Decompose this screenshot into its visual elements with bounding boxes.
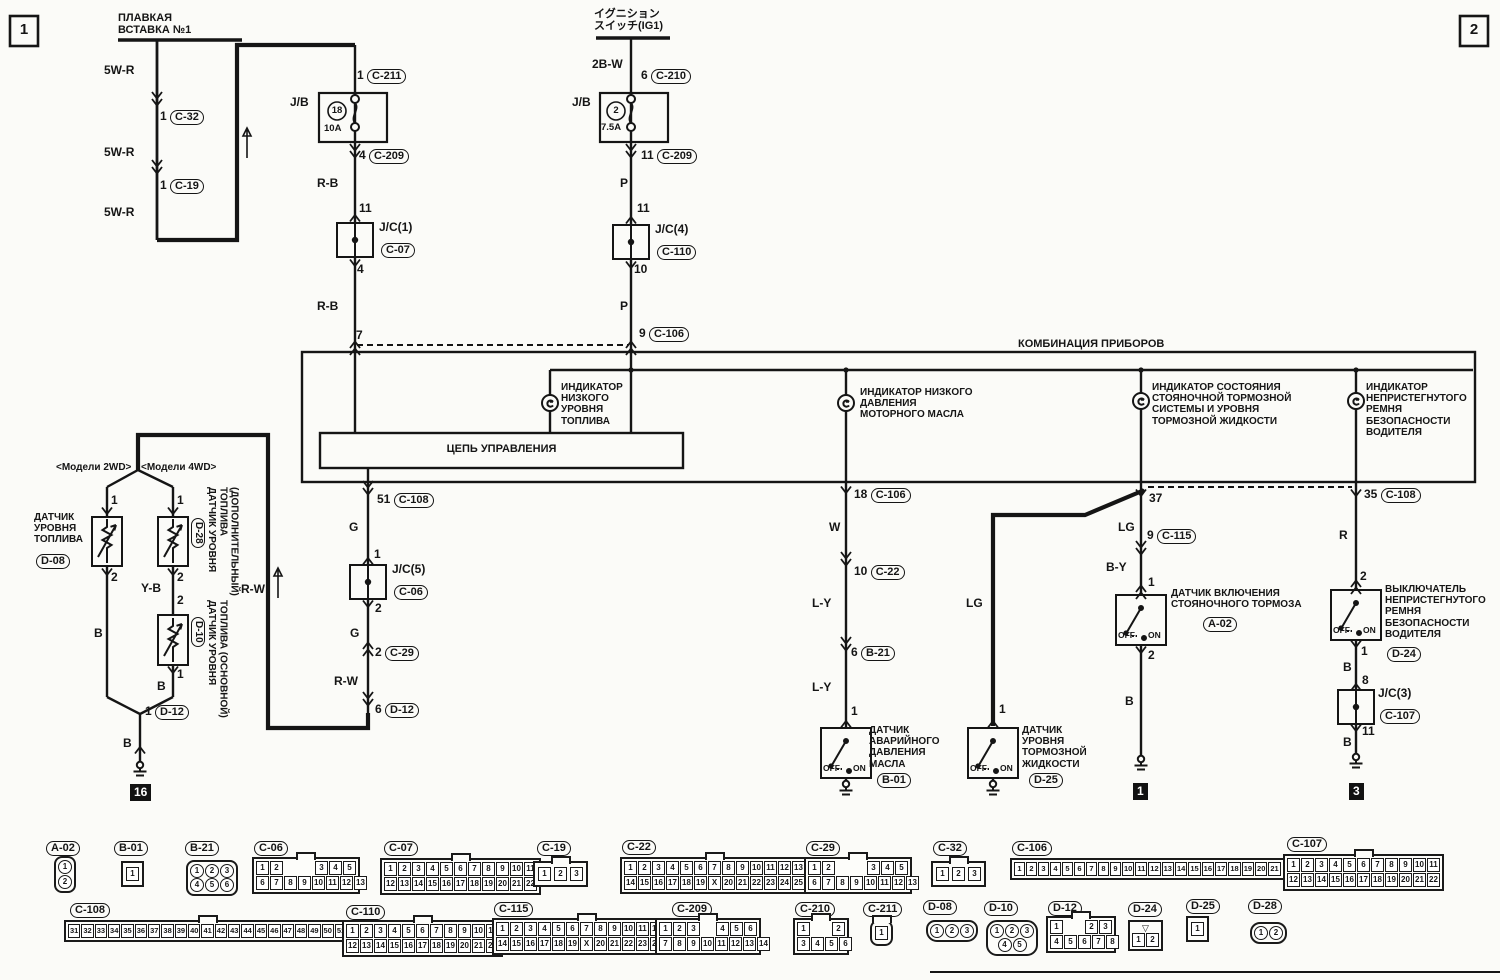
wire-label: R-B [317,300,338,313]
pin-connector-ref: 1 C-32 [160,110,204,125]
connector-pin: 49 [308,924,320,938]
connector-pin: 6 [220,878,234,892]
connector-name: D-25 [1186,899,1220,914]
joint-connector-label: J/C(3) [1378,687,1411,700]
page-number-right: 2 [1460,22,1488,39]
connector-pin: 2 [1146,933,1159,947]
connector-pin: 2 [822,861,835,875]
connector-pin: 21 [608,937,621,951]
connector-pin: 8 [673,937,686,951]
connector-pin: 7 [270,876,283,890]
connector-name: B-01 [114,841,148,856]
pin-number: 11 [1362,725,1375,738]
connector-pin: 7 [430,924,443,938]
connector-pin: 7 [708,861,721,875]
connector-pin: 19 [694,876,707,890]
connector-pin: 5 [205,878,219,892]
pin-number: 1 [111,494,118,507]
pin-number: 10 [634,263,647,276]
connector-body-c210: 12 3456 [793,918,849,955]
connector-pin: 1 [58,860,72,874]
connector-pin: 6 [454,862,467,876]
connector-pin: 4 [1050,862,1061,876]
connector-pin: 9 [687,937,700,951]
connector-pin: 14 [1175,862,1187,876]
connector-name: C-06 [254,841,288,856]
connector-pin: 6 [1078,935,1091,949]
connector-pin: 12 [346,939,359,953]
connector-body-c107: 1234567891011 1213141516171819202122 [1283,854,1444,891]
pin-number: 2 [177,594,184,607]
connector-pin: 8 [1098,862,1109,876]
pin-number: 11 [359,202,372,215]
connector-pin: 31 [68,924,80,938]
connector-pin: 2 [1026,862,1037,876]
connector-ref: C-209 [369,149,409,164]
connector-pin: 19 [444,939,457,953]
connector-body-d24: ▽ 12 [1128,920,1163,951]
connector-body-b01: 1 [121,861,144,887]
connector-pin: 5 [440,862,453,876]
wire-label: 5W-R [104,64,134,77]
pin-number: 7 [356,329,363,342]
connector-pin: 20 [722,876,735,890]
connector-ref: C-211 [367,69,406,84]
connector-ref: C-19 [170,179,204,194]
connector-pin: 19 [1385,873,1398,887]
connector-pin: 14 [496,937,509,951]
connector-pin: 8 [444,924,457,938]
connector-pin: 6 [694,861,707,875]
connector-pin: 48 [295,924,307,938]
connector-ref: C-22 [871,565,905,580]
connector-pin: 10 [510,862,523,876]
ground-tag: 1 [1133,783,1148,800]
connector-pin: 8 [1385,858,1398,872]
connector-pin: 3 [1020,924,1034,938]
connector-body-c32: 123 [931,861,986,887]
connector-pin: 41 [201,924,213,938]
connector-pin: 14 [412,877,425,891]
connector-name: A-02 [46,841,80,856]
wire-label: 2B-W [592,58,623,71]
connector-pin: 12 [340,876,353,890]
connector-body-c209: 123456 7891011121314 [655,918,761,955]
junction-block-label: J/B [290,96,309,109]
wire-label: P [620,177,628,190]
wire-label: 5W-R [104,206,134,219]
connector-pin: 17 [416,939,429,953]
connector-pin: 1 [1254,926,1268,940]
pin-connector-ref: 1 D-12 [145,705,189,720]
connector-pin: 12 [778,861,791,875]
pin-connector-ref: 1 C-19 [160,179,204,194]
connector-pin: 8 [594,922,607,936]
wire-label: B [1125,695,1134,708]
connector-ref: B-21 [861,646,895,661]
connector-pin: 7 [1086,862,1097,876]
wire-label: P [620,300,628,313]
fusible-link-title: ПЛАВКАЯ ВСТАВКА №1 [118,12,191,37]
connector-pin: 2 [638,861,651,875]
connector-pin: 38 [161,924,173,938]
connector-pin: 18 [430,939,443,953]
connector-pin: 10 [472,924,485,938]
switch-on-label: ON [1148,631,1161,641]
connector-body-c07: 1234567891011 1213141516171819202122 [380,858,541,895]
connector-pin: 4 [1050,935,1063,949]
model-2wd-label: <Модели 2WD> [56,462,131,473]
connector-pin: 1 [126,867,139,881]
connector-pin: 18 [468,877,481,891]
fuse-number: 18 [329,106,345,117]
pin-number: 1 [851,705,858,718]
connector-pin: 3 [867,861,880,875]
connector-ref-vertical: D-28 [191,518,205,548]
connector-pin: 16 [1343,873,1356,887]
connector-pin: 6 [1074,862,1085,876]
connector-pin: 12 [729,937,742,951]
connector-pin: 11 [764,861,777,875]
connector-pin: 8 [284,876,297,890]
connector-pin: 22 [622,937,635,951]
connector-pin: 5 [402,924,415,938]
connector-name: C-115 [494,902,533,917]
connector-pin: 5 [552,922,565,936]
connector-pin: 4 [426,862,439,876]
connector-pin: 8 [482,862,495,876]
connector-pin: 18 [1228,862,1240,876]
connector-pin: 19 [1242,862,1254,876]
connector-pin: 15 [1329,873,1342,887]
fuse-rating: 7.5A [601,123,621,134]
connector-pin: 13 [1301,873,1314,887]
control-circuit-box-label: ЦЕПЬ УПРАВЛЕНИЯ [320,443,683,455]
connector-pin: 2 [1005,924,1019,938]
connector-name: C-110 [346,905,385,920]
connector-pin: 12 [892,876,905,890]
connector-name: C-22 [622,840,656,855]
connector-pin: 13 [398,877,411,891]
connector-pin: 37 [148,924,160,938]
connector-name: C-19 [537,841,571,856]
connector-pin: 16 [1202,862,1214,876]
connector-pin: 3 [524,922,537,936]
connector-pin: 5 [825,937,838,951]
connector-pin: 10 [701,937,714,951]
connector-pin: 3 [687,922,700,936]
connector-pin: 14 [624,876,637,890]
connector-pin: 23 [636,937,649,951]
connector-pin: 17 [454,877,467,891]
connector-body-b21: 123 456 [186,860,238,896]
connector-pin: 6 [256,876,269,890]
wire-label: L-Y [812,597,831,610]
connector-pin: 1 [1050,920,1063,934]
brake-fluid-sensor-label: ДАТЧИК УРОВНЯ ТОРМОЗНОЙ ЖИДКОСТИ [1022,725,1087,770]
connector-ref: C-06 [394,585,428,600]
connector-pin: 6 [566,922,579,936]
connector-pin: 3 [374,924,387,938]
connector-pin: 1 [875,926,888,940]
connector-pin: 13 [906,876,919,890]
connector-pin: 42 [215,924,227,938]
switch-on-label: ON [853,764,866,774]
pin-connector-ref: 11 C-209 [641,149,697,164]
connector-ref: D-25 [1029,773,1063,788]
connector-ref: C-110 [657,245,696,260]
connector-pin: 1 [256,861,269,875]
connector-pin: 2 [952,867,965,881]
connector-pin: 5 [730,922,743,936]
connector-pin: 1 [808,861,821,875]
ground-tag: 3 [1349,783,1364,800]
connector-pin: 8 [836,876,849,890]
pin-connector-ref: 35 C-108 [1364,488,1421,503]
connector-pin: 3 [315,861,328,875]
wire-label: R-W [334,675,358,688]
wire-label: B [1343,736,1352,749]
indicator-parking-brake-label: ИНДИКАТОР СОСТОЯНИЯ СТОЯНОЧНОЙ ТОРМОЗНОЙ… [1152,382,1291,427]
connector-pin: 3 [652,861,665,875]
connector-pin: X [580,937,593,951]
joint-connector-label: J/C(4) [655,223,688,236]
connector-pin: 4 [329,861,342,875]
wire-label: B-Y [1106,561,1127,574]
connector-pin: 3 [797,937,810,951]
notch-icon: ▽ [1132,924,1159,933]
connector-name: D-28 [1248,899,1282,914]
connector-pin: 3 [220,864,234,878]
pin-number: 2 [1360,570,1367,583]
connector-pin: 2 [1269,926,1283,940]
connector-pin: 46 [268,924,280,938]
parking-brake-switch-label: ДАТЧИК ВКЛЮЧЕНИЯ СТОЯНОЧНОГО ТОРМОЗА [1171,588,1302,610]
connector-pin: 11 [636,922,649,936]
connector-pin: 1 [190,864,204,878]
junction-block-label: J/B [572,96,591,109]
connector-pin: 2 [58,875,72,889]
pin-connector-ref: 6 B-21 [851,646,895,661]
connector-ref: C-209 [657,149,697,164]
connector-pin: 1 [990,924,1004,938]
connector-pin: 1 [384,862,397,876]
connector-pin: 20 [1255,862,1267,876]
pin-connector-ref: 10 C-22 [854,565,905,580]
connector-pin: 2 [945,924,959,938]
switch-off-label: OFF [823,764,840,774]
connector-name: D-08 [923,900,957,915]
connector-pin: 8 [722,861,735,875]
connector-pin: 21 [472,939,485,953]
connector-pin: 20 [594,937,607,951]
pin-connector-ref: 9 C-115 [1147,529,1196,544]
pin-number: 4 [357,263,364,276]
connector-pin: 15 [426,877,439,891]
pin-number: 1 [177,494,184,507]
connector-ref: C-108 [1381,488,1421,503]
connector-pin: 13 [1162,862,1174,876]
connector-body-c110: 1234567891011 1213141516171819202122 [342,920,503,957]
connector-ref: C-210 [651,69,691,84]
connector-pin: 1 [346,924,359,938]
connector-pin: 10 [1413,858,1426,872]
connector-pin: 12 [1148,862,1160,876]
connector-ref-vertical: D-10 [191,617,205,647]
connector-pin: 4 [190,878,204,892]
pin-number: 2 [177,571,184,584]
connector-pin: 20 [1399,873,1412,887]
fuse-rating: 10A [324,124,341,135]
connector-body-c22: 12345678910111213 141516171819X202122232… [620,857,809,894]
pin-connector-ref: 2 C-29 [375,646,419,661]
wire-label: LG [966,597,983,610]
connector-pin: 11 [1135,862,1147,876]
connector-pin: 1 [1191,922,1204,936]
connector-pin: 7 [580,922,593,936]
pin-connector-ref: 51 C-108 [377,493,434,508]
connector-pin: 11 [1427,858,1440,872]
connector-pin: 36 [135,924,147,938]
fuel-sender-label: ДАТЧИК УРОВНЯ ТОПЛИВА [34,512,83,546]
connector-pin: 2 [360,924,373,938]
connector-ref: C-107 [1380,709,1420,724]
connector-ref: C-106 [649,327,689,342]
connector-pin: 47 [282,924,294,938]
connector-ref: C-115 [1157,529,1196,544]
wire-label: W [829,521,840,534]
connector-pin: 1 [1132,933,1145,947]
connector-pin: 2 [510,922,523,936]
connector-pin: 7 [468,862,481,876]
pin-number: 2 [111,571,118,584]
connector-body-d25: 1 [1186,916,1209,942]
connector-pin: 18 [552,937,565,951]
fuel-sender-main-label: ДАТЧИК УРОВНЯ ТОПЛИВА (ОСНОВНОЙ) [206,600,228,718]
connector-pin: 7 [1371,858,1384,872]
switch-off-label: OFF [1118,631,1135,641]
wire-label: LG [1118,521,1135,534]
connector-pin: 10 [750,861,763,875]
pin-connector-ref: 18 C-106 [854,488,911,503]
wire-label: R-B [317,177,338,190]
fuse-number: 2 [608,106,624,117]
connector-ref: D-08 [36,554,70,569]
wire-label: B [157,680,166,693]
connector-pin: 19 [566,937,579,951]
connector-pin: 12 [1287,873,1300,887]
connector-pin: 4 [716,922,729,936]
pin-number: 2 [375,602,382,615]
connector-body-c108: 3132333435363738394041424344454647484950… [64,920,351,942]
connector-pin: 18 [1371,873,1384,887]
connector-body-a02: 12 [54,856,76,893]
connector-pin: 40 [188,924,200,938]
connector-ref: C-29 [385,646,419,661]
connector-pin: 32 [81,924,93,938]
wiring-diagram-page: 1 2 ПЛАВКАЯ ВСТАВКА №1 5W-R 1 C-32 5W-R … [0,0,1500,980]
wire-label: B [123,737,132,750]
pin-connector-ref: 1 C-211 [357,69,406,84]
pin-number: 2 [1148,649,1155,662]
connector-name: C-107 [1287,837,1327,852]
indicator-fuel-low-label: ИНДИКАТОР НИЗКОГО УРОВНЯ ТОПЛИВА [561,382,623,427]
connector-body-c106: 123456789101112131415161718192021 [1010,858,1285,880]
connector-pin: 4 [666,861,679,875]
connector-pin: 5 [1062,862,1073,876]
connector-pin: 1 [659,922,672,936]
connector-pin: 1 [797,922,810,936]
connector-pin: 35 [121,924,133,938]
connector-pin: 2 [270,861,283,875]
connector-pin: 3 [1099,920,1112,934]
connector-pin: 9 [298,876,311,890]
connector-pin: 20 [458,939,471,953]
connector-pin: 24 [778,876,791,890]
connector-pin: 5 [1013,938,1027,952]
connector-pin: 15 [1188,862,1200,876]
pin-number: 1 [177,668,184,681]
wire-label: B [94,627,103,640]
connector-pin: 5 [895,861,908,875]
connector-body-d28: 12 [1250,922,1287,944]
wire-label: R [1339,529,1348,542]
connector-pin: 6 [839,937,852,951]
connector-pin: 4 [538,922,551,936]
connector-pin: 13 [360,939,373,953]
connector-pin: 10 [864,876,877,890]
switch-on-label: ON [1000,764,1013,774]
connector-pin: 7 [822,876,835,890]
pin-number: 1 [374,548,381,561]
connector-pin: 1 [1287,858,1300,872]
pin-number: 11 [637,202,650,215]
connector-pin: 10 [622,922,635,936]
connector-body-c19: 123 [533,861,588,887]
connector-ref: C-106 [871,488,911,503]
connector-name: C-108 [70,903,110,918]
connector-pin: 1 [538,867,551,881]
connector-pin: 2 [554,867,567,881]
connector-pin: 5 [1343,858,1356,872]
wire-label: L-Y [812,681,831,694]
connector-pin: 33 [95,924,107,938]
connector-pin: 16 [440,877,453,891]
connector-pin: 17 [538,937,551,951]
connector-pin: 12 [384,877,397,891]
connector-body-d12: 123 45678 [1046,916,1116,953]
connector-pin: 7 [659,937,672,951]
connector-pin: 9 [458,924,471,938]
connector-pin: 3 [1315,858,1328,872]
connector-pin: 9 [608,922,621,936]
wire-label: G [349,521,358,534]
connector-pin: 45 [255,924,267,938]
connector-pin: 4 [881,861,894,875]
wire-label: R-W [241,583,265,596]
connector-pin: 18 [680,876,693,890]
connector-pin: 11 [878,876,891,890]
connector-pin: 10 [312,876,325,890]
connector-pin: 17 [1357,873,1370,887]
connector-pin: 34 [108,924,120,938]
connector-pin: 2 [1301,858,1314,872]
connector-pin: 21 [1413,873,1426,887]
connector-ref: D-12 [385,703,419,718]
pin-number: 37 [1149,492,1162,505]
connector-pin: 6 [744,922,757,936]
connector-pin: 15 [638,876,651,890]
